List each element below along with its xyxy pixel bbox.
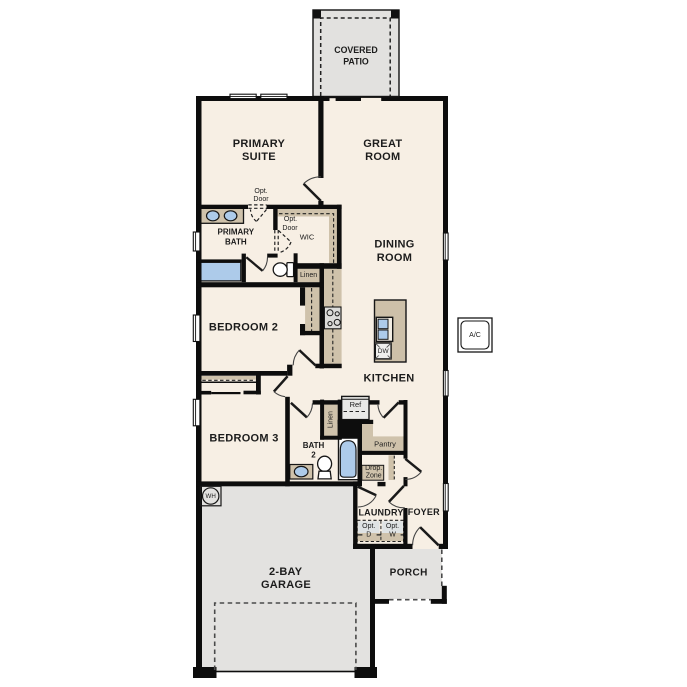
svg-text:COVERED: COVERED bbox=[334, 45, 378, 55]
svg-text:Opt.: Opt. bbox=[284, 216, 297, 223]
svg-text:BEDROOM 3: BEDROOM 3 bbox=[209, 432, 278, 444]
svg-text:LAUNDRY: LAUNDRY bbox=[358, 508, 403, 518]
svg-text:PORCH: PORCH bbox=[390, 567, 428, 578]
svg-text:Zone: Zone bbox=[366, 472, 382, 479]
svg-text:A/C: A/C bbox=[469, 332, 481, 339]
svg-text:BATH: BATH bbox=[303, 441, 325, 450]
svg-text:Opt.: Opt. bbox=[386, 523, 399, 530]
svg-text:WIC: WIC bbox=[300, 233, 315, 242]
svg-text:2: 2 bbox=[311, 451, 316, 460]
svg-text:ROOM: ROOM bbox=[377, 252, 412, 264]
svg-text:BEDROOM 2: BEDROOM 2 bbox=[209, 322, 278, 334]
svg-text:Drop.: Drop. bbox=[365, 465, 382, 472]
svg-text:Door: Door bbox=[282, 225, 298, 232]
svg-text:GREAT: GREAT bbox=[363, 138, 402, 150]
svg-text:Linen: Linen bbox=[300, 272, 317, 279]
svg-text:GARAGE: GARAGE bbox=[261, 579, 311, 591]
svg-text:KITCHEN: KITCHEN bbox=[364, 373, 415, 385]
svg-text:Linen: Linen bbox=[327, 411, 334, 428]
svg-text:W: W bbox=[389, 532, 396, 539]
svg-text:Opt.: Opt. bbox=[362, 523, 375, 530]
svg-text:ROOM: ROOM bbox=[365, 151, 400, 163]
svg-text:SUITE: SUITE bbox=[242, 151, 276, 163]
svg-text:Ref: Ref bbox=[350, 400, 363, 409]
svg-text:Door: Door bbox=[253, 196, 269, 203]
svg-text:DW: DW bbox=[378, 348, 390, 355]
svg-text:WH: WH bbox=[206, 493, 216, 500]
svg-text:FOYER: FOYER bbox=[408, 507, 440, 517]
svg-text:D: D bbox=[366, 532, 371, 539]
svg-text:BATH: BATH bbox=[225, 238, 247, 247]
svg-text:2-BAY: 2-BAY bbox=[269, 566, 303, 578]
svg-text:Pantry: Pantry bbox=[374, 440, 396, 449]
svg-text:PRIMARY: PRIMARY bbox=[218, 228, 255, 237]
svg-text:DINING: DINING bbox=[374, 239, 414, 251]
svg-text:Opt.: Opt. bbox=[254, 188, 267, 195]
svg-text:PRIMARY: PRIMARY bbox=[233, 138, 286, 150]
svg-text:PATIO: PATIO bbox=[343, 56, 369, 66]
